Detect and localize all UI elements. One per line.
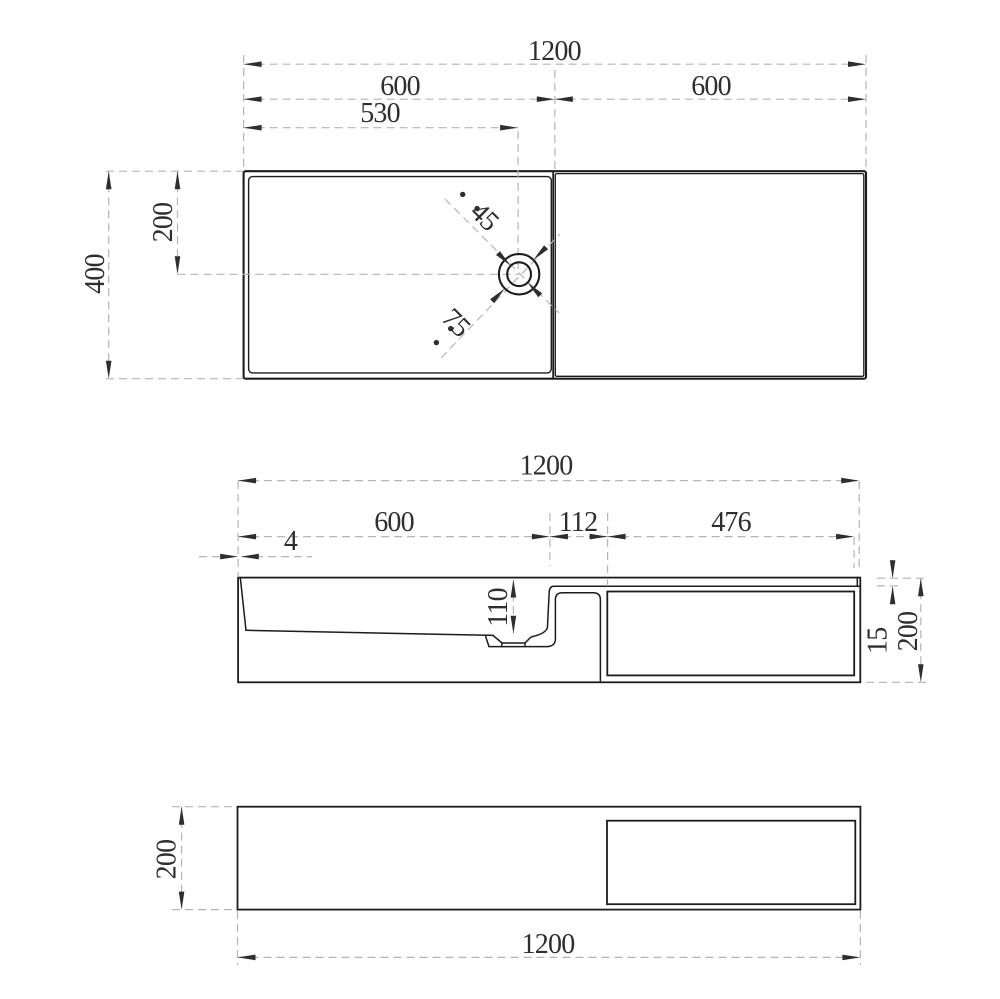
svg-text:600: 600 xyxy=(374,507,414,538)
svg-text:530: 530 xyxy=(360,98,400,129)
svg-text:4: 4 xyxy=(284,526,298,557)
svg-text:476: 476 xyxy=(711,507,751,538)
svg-text:400: 400 xyxy=(80,254,111,294)
svg-text:600: 600 xyxy=(691,71,731,102)
svg-text:1200: 1200 xyxy=(520,451,573,482)
svg-text:200: 200 xyxy=(152,840,183,880)
svg-text:15: 15 xyxy=(863,628,894,654)
svg-text:1200: 1200 xyxy=(528,36,581,67)
svg-text:110: 110 xyxy=(483,588,514,627)
svg-text:200: 200 xyxy=(893,612,924,652)
svg-text:200: 200 xyxy=(148,203,179,243)
svg-text:112: 112 xyxy=(559,507,598,538)
svg-text:1200: 1200 xyxy=(522,929,575,960)
